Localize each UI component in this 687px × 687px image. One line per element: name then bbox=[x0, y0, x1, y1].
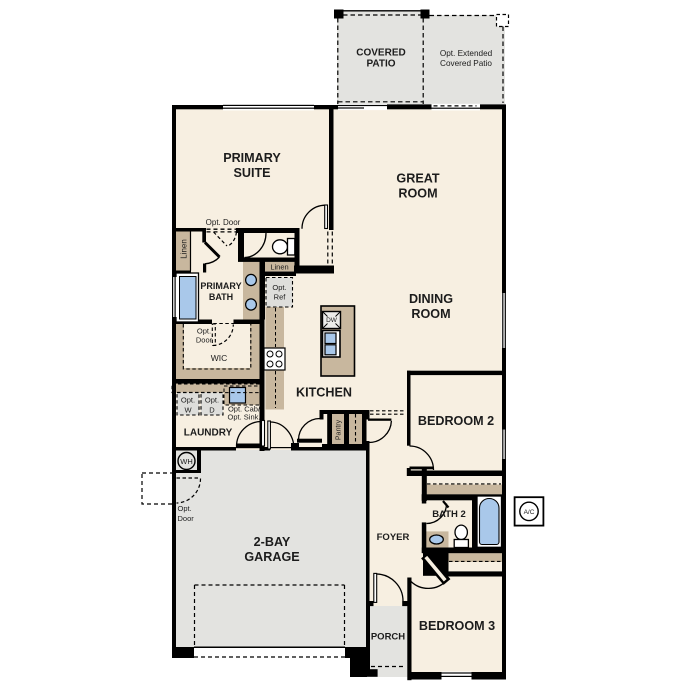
svg-text:Opt.: Opt. bbox=[197, 327, 211, 336]
svg-text:GREAT: GREAT bbox=[396, 172, 439, 186]
svg-text:Door: Door bbox=[178, 514, 195, 523]
svg-text:WIC: WIC bbox=[211, 353, 228, 363]
svg-text:LAUNDRY: LAUNDRY bbox=[184, 428, 233, 439]
svg-text:A/C: A/C bbox=[524, 509, 535, 516]
svg-text:BEDROOM 3: BEDROOM 3 bbox=[419, 619, 495, 633]
svg-text:PRIMARY: PRIMARY bbox=[223, 151, 281, 165]
svg-text:D: D bbox=[209, 406, 215, 415]
svg-text:Door: Door bbox=[196, 336, 213, 345]
svg-text:DW: DW bbox=[326, 317, 338, 324]
svg-text:Covered Patio: Covered Patio bbox=[440, 59, 492, 68]
svg-text:DINING: DINING bbox=[409, 292, 453, 306]
svg-text:ROOM: ROOM bbox=[398, 187, 437, 201]
svg-text:Pantry: Pantry bbox=[336, 419, 343, 440]
svg-text:Opt.: Opt. bbox=[272, 283, 286, 292]
svg-text:WH: WH bbox=[180, 457, 193, 466]
svg-text:Opt. Sink.: Opt. Sink. bbox=[228, 413, 261, 422]
svg-text:PATIO: PATIO bbox=[366, 59, 395, 70]
svg-text:FOYER: FOYER bbox=[377, 532, 410, 543]
svg-text:Opt.: Opt. bbox=[181, 396, 195, 405]
svg-text:COVERED: COVERED bbox=[356, 48, 405, 59]
svg-text:Opt.: Opt. bbox=[178, 504, 192, 513]
svg-text:PORCH: PORCH bbox=[371, 632, 405, 643]
svg-text:BEDROOM 2: BEDROOM 2 bbox=[418, 414, 494, 428]
svg-text:ROOM: ROOM bbox=[411, 307, 450, 321]
svg-text:KITCHEN: KITCHEN bbox=[296, 386, 352, 400]
svg-text:Opt. Door: Opt. Door bbox=[206, 218, 241, 227]
svg-text:BATH 2: BATH 2 bbox=[432, 509, 466, 520]
svg-text:Ref: Ref bbox=[274, 293, 287, 302]
svg-text:GARAGE: GARAGE bbox=[244, 550, 299, 564]
svg-text:BATH: BATH bbox=[209, 292, 233, 302]
svg-text:Linen: Linen bbox=[270, 262, 288, 271]
svg-text:SUITE: SUITE bbox=[233, 166, 270, 180]
svg-text:PRIMARY: PRIMARY bbox=[200, 281, 241, 291]
svg-text:Linen: Linen bbox=[180, 239, 189, 259]
svg-text:W: W bbox=[184, 406, 192, 415]
svg-text:2-BAY: 2-BAY bbox=[254, 535, 291, 549]
svg-text:Opt.: Opt. bbox=[205, 396, 219, 405]
svg-text:Opt. Extended: Opt. Extended bbox=[440, 49, 493, 58]
